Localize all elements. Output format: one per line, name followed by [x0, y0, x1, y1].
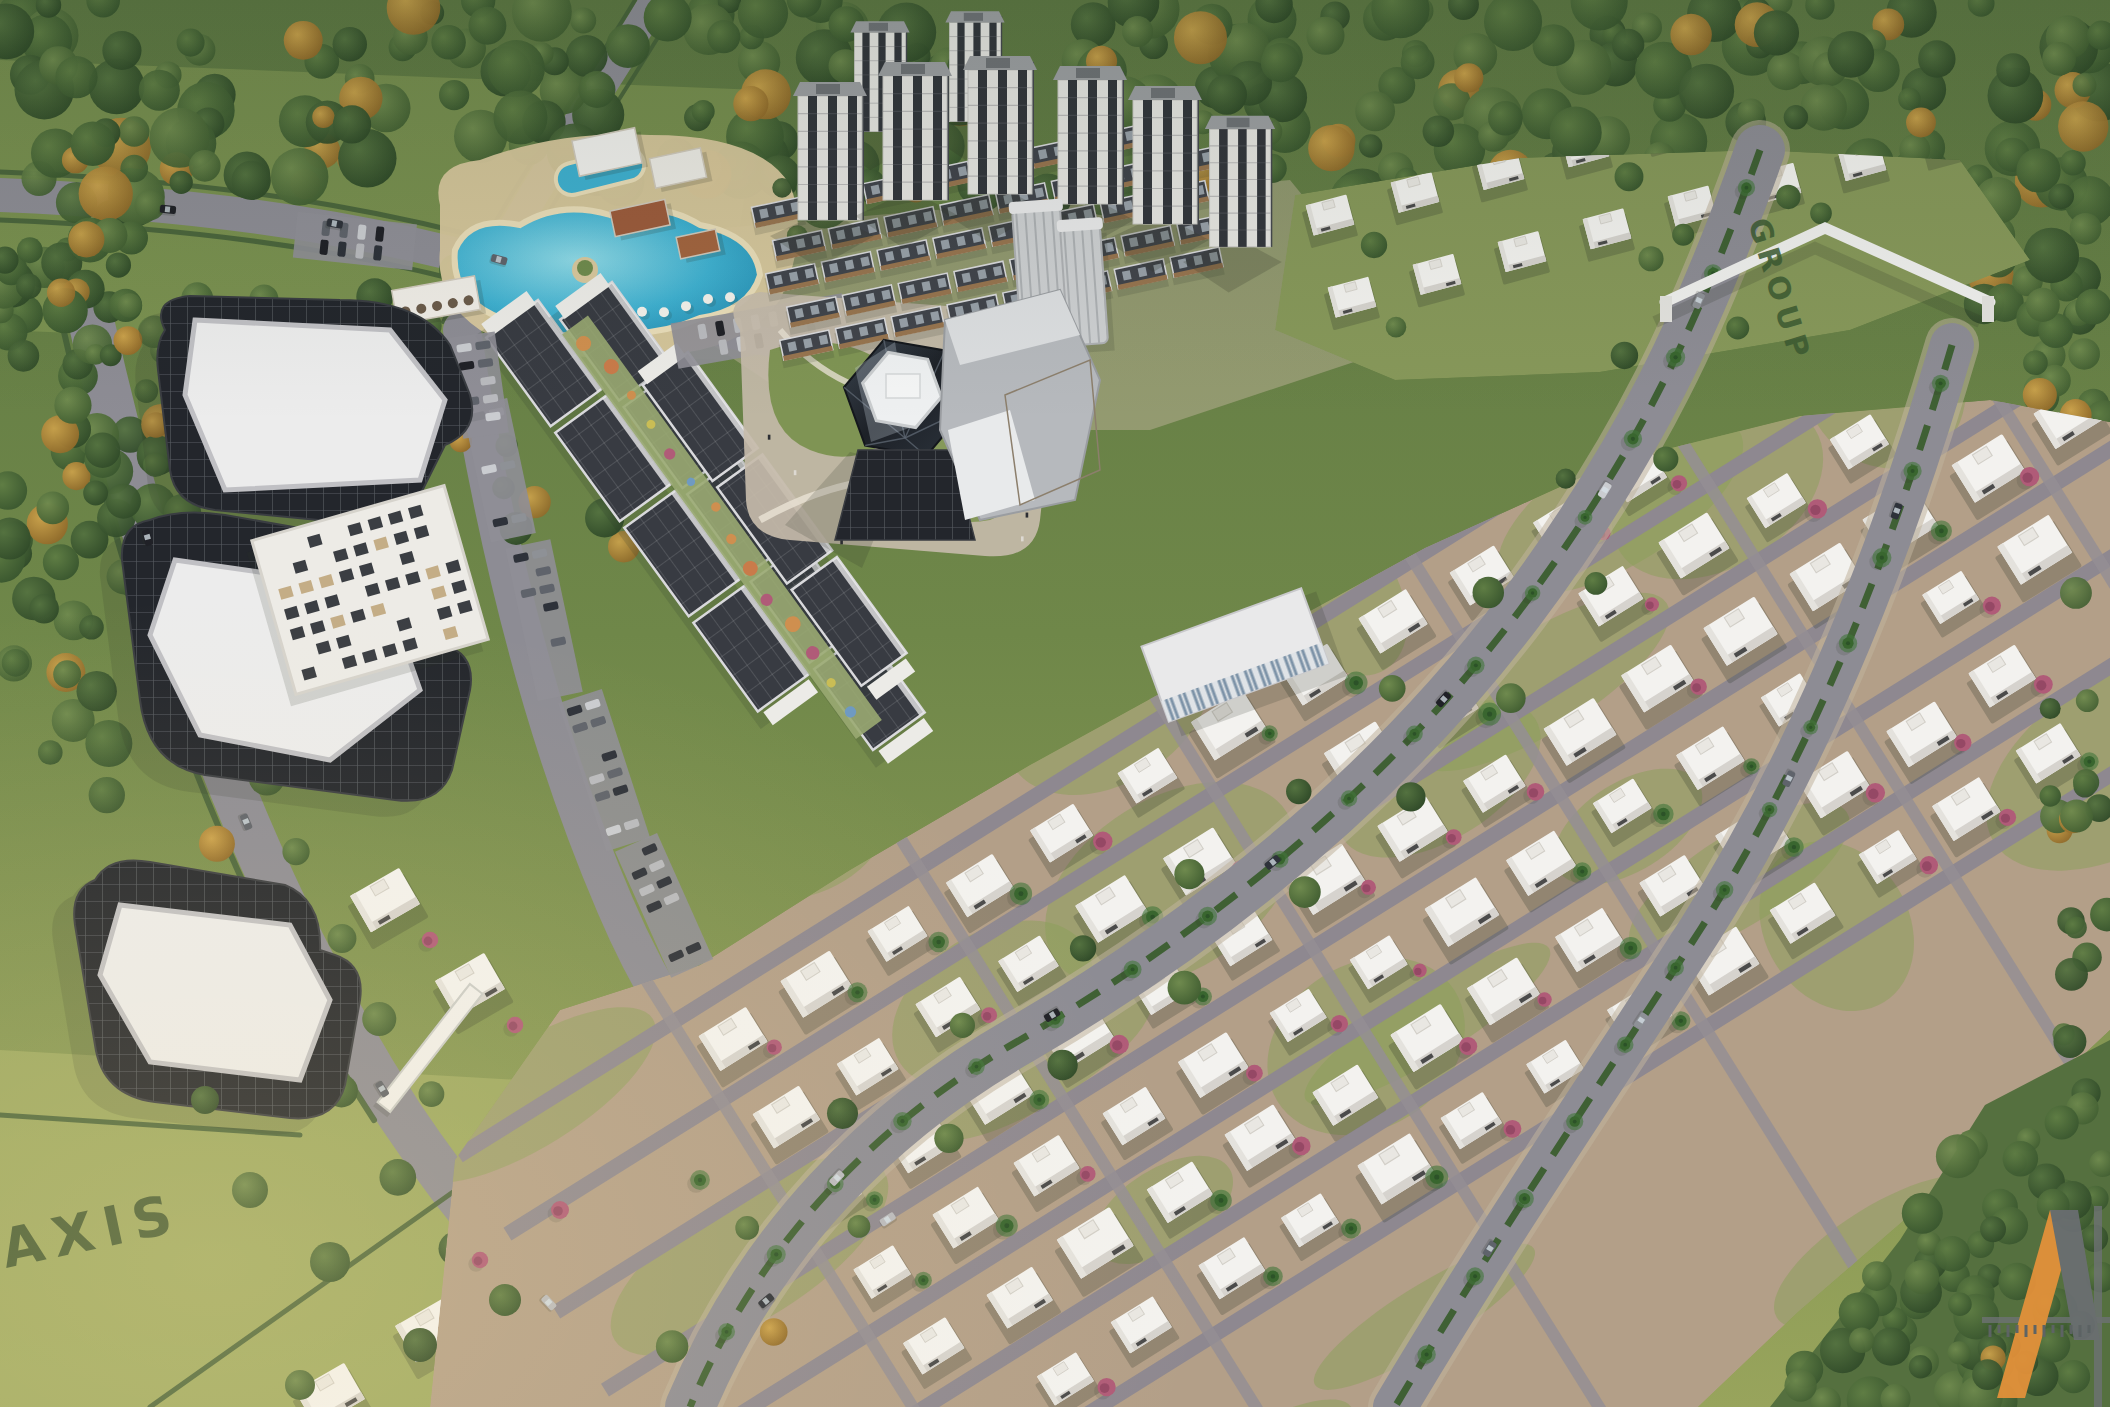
lighting-overlay: [0, 0, 2110, 1407]
render-canvas: AXIS GROUP: [0, 0, 2110, 1407]
aerial-masterplan-render: AXIS GROUP: [0, 0, 2110, 1407]
watermark-vertical-bar: [2094, 1206, 2102, 1407]
